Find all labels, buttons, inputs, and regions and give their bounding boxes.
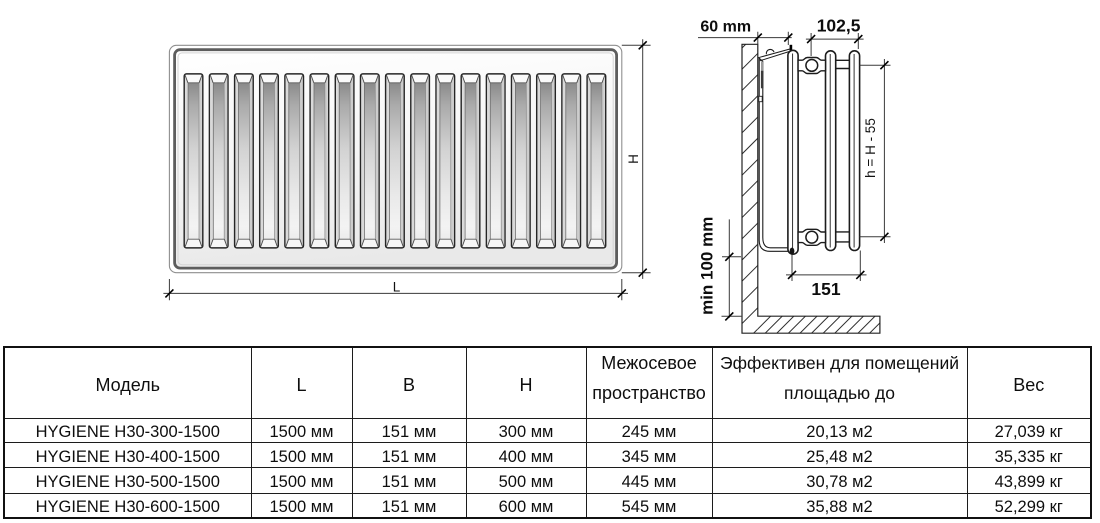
svg-text:L: L — [393, 280, 401, 295]
svg-text:H: H — [626, 154, 641, 164]
svg-text:151: 151 — [811, 279, 840, 299]
svg-text:min 100 mm: min 100 mm — [698, 217, 717, 315]
svg-text:60 mm: 60 mm — [700, 18, 751, 35]
svg-text:102,5: 102,5 — [817, 15, 861, 35]
svg-text:h = H - 55: h = H - 55 — [863, 118, 878, 178]
